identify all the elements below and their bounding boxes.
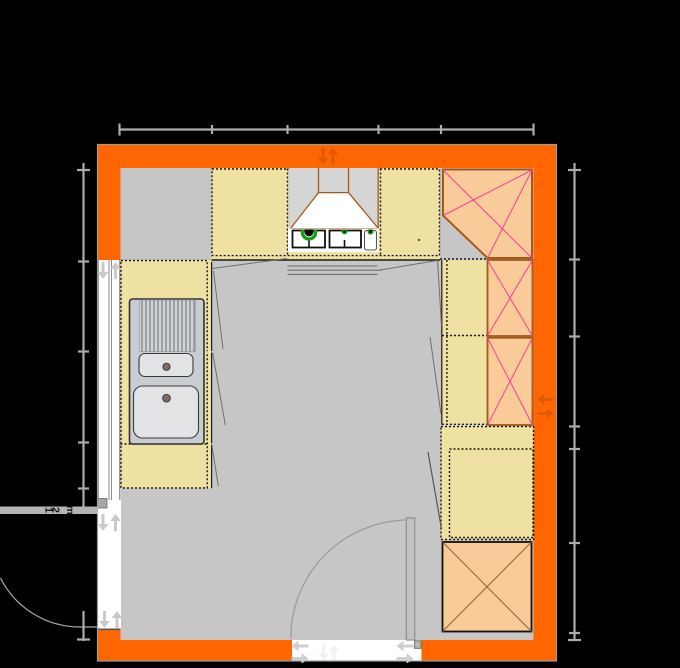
svg-text:m: m <box>64 505 76 514</box>
svg-text:2: 2 <box>50 507 62 513</box>
